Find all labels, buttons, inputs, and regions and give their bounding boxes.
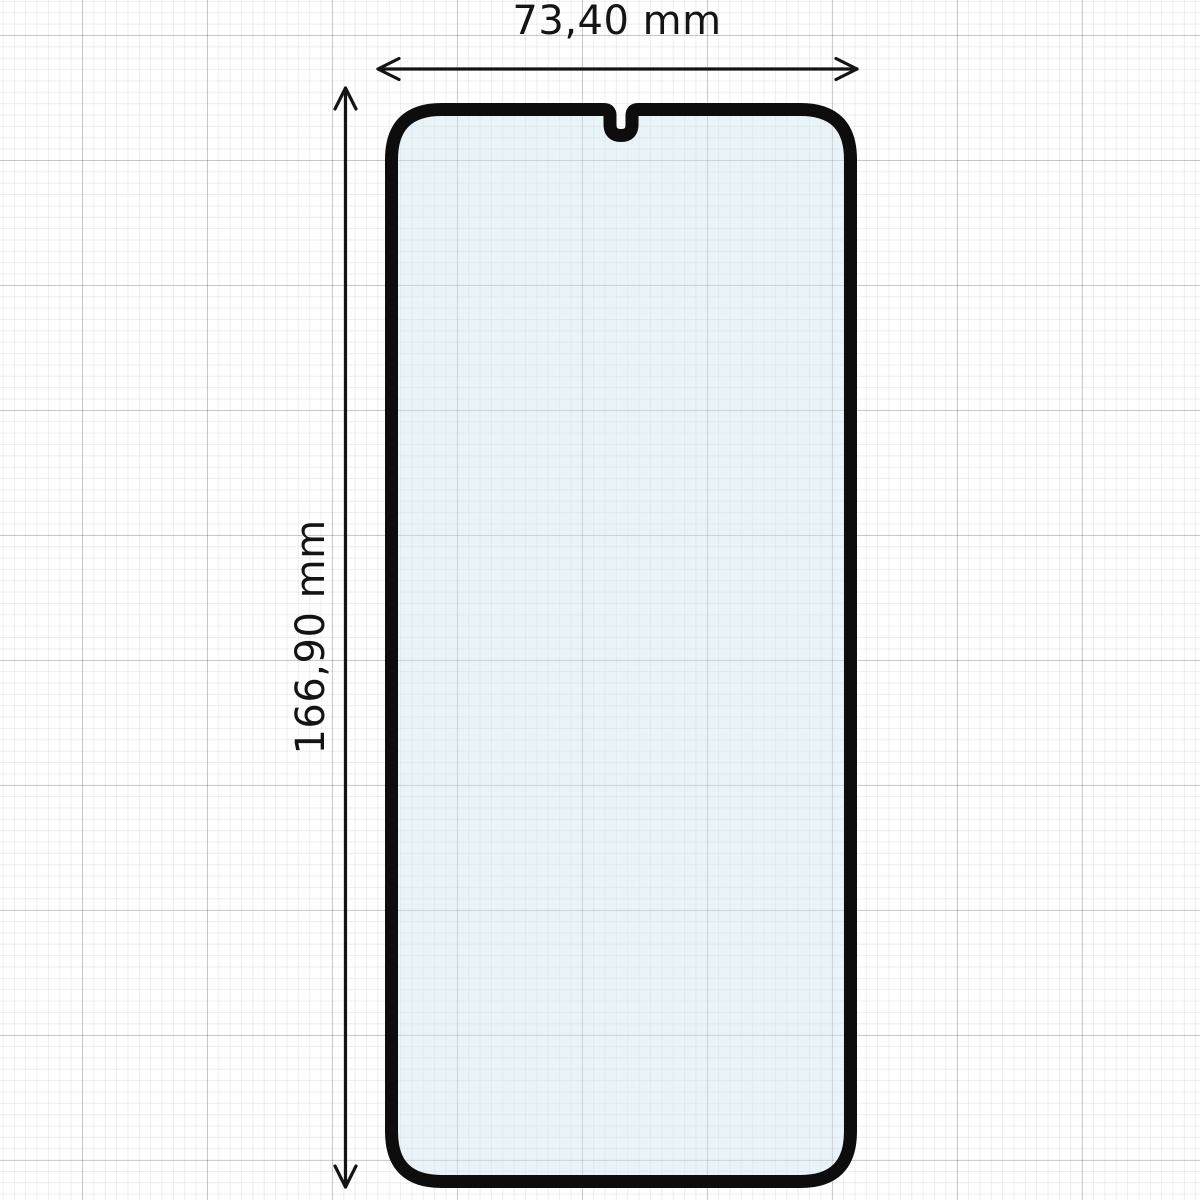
dimension-diagram bbox=[0, 0, 1200, 1200]
width-dimension-arrow bbox=[378, 59, 857, 80]
screen-protector-shape bbox=[392, 110, 851, 1182]
diagram-page: { "diagram": { "subject": "phone-screen-… bbox=[0, 0, 1200, 1200]
width-dimension-label: 73,40 mm bbox=[512, 0, 721, 45]
height-dimension-label: 166,90 mm bbox=[287, 519, 335, 754]
height-dimension-arrow bbox=[335, 88, 356, 1187]
